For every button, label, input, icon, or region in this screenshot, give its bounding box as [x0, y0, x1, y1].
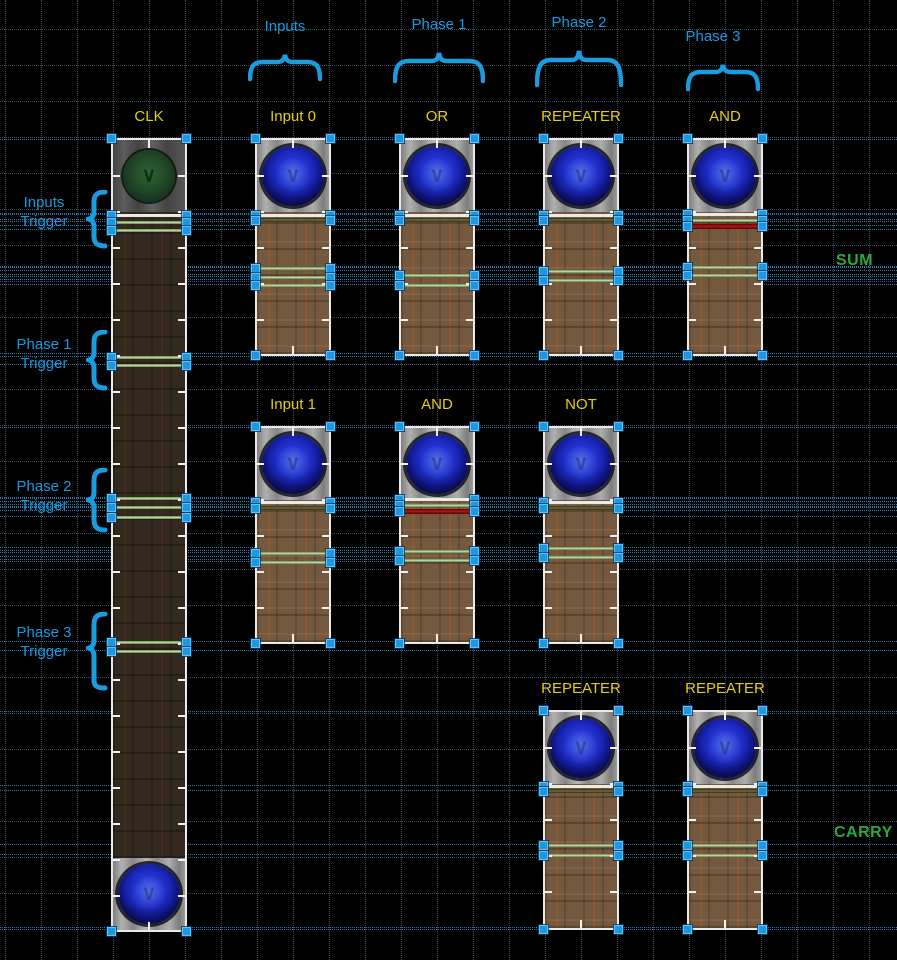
button-arrow-icon: ∨ [430, 163, 445, 188]
frame-tick [113, 679, 120, 681]
trigger-line-green [689, 274, 761, 277]
trigger-line-green [113, 221, 185, 224]
frame-tick [322, 319, 329, 321]
repeater-carry2-column-button-blue: ∨ [694, 718, 756, 778]
trigger-line-handle[interactable] [395, 216, 404, 225]
trigger-line-handle[interactable] [395, 547, 404, 556]
trigger-line-green [113, 641, 185, 644]
trigger-line-green [545, 547, 617, 550]
and-phase3-column-corner-handle-se[interactable] [758, 351, 767, 360]
not-column-corner-handle-ne[interactable] [614, 422, 623, 431]
trigger-line-green [113, 650, 185, 653]
trigger-line-green [257, 561, 329, 564]
frame-tick [466, 463, 473, 465]
frame-tick [322, 463, 329, 465]
frame-tick [724, 920, 726, 928]
trigger-line-green [689, 844, 761, 847]
trigger-line-handle[interactable] [614, 216, 623, 225]
trigger-line-handle[interactable] [326, 549, 335, 558]
trigger-line-handle[interactable] [614, 841, 623, 850]
frame-tick [178, 175, 185, 177]
trigger-line-handle[interactable] [758, 851, 767, 860]
clk-column-wood-body [113, 212, 185, 858]
and-phase1-column-label: AND [354, 396, 520, 413]
frame-tick [610, 535, 617, 537]
frame-tick [610, 607, 617, 609]
group-label-phase3: Phase 3 [668, 28, 758, 45]
not-column-corner-handle-nw[interactable] [539, 422, 548, 431]
not-column-button-blue: ∨ [550, 434, 612, 494]
and-phase1-column-corner-handle-ne[interactable] [470, 422, 479, 431]
frame-tick [545, 747, 552, 749]
trigger-line-handle[interactable] [539, 276, 548, 285]
frame-tick [178, 535, 185, 537]
frame-tick [322, 535, 329, 537]
frame-tick [178, 319, 185, 321]
input0-column-corner-handle-ne[interactable] [326, 134, 335, 143]
trigger-line-handle[interactable] [614, 544, 623, 553]
trigger-line-green [113, 516, 185, 519]
frame-tick [401, 535, 408, 537]
trigger-line-olive [257, 506, 329, 510]
phase1-trigger-brace [86, 330, 108, 392]
and-phase3-column-label: AND [642, 108, 808, 125]
button-arrow-icon: ∨ [574, 735, 589, 760]
repeater-carry2-column-corner-handle-se[interactable] [758, 925, 767, 934]
trigger-line-olive [257, 218, 329, 222]
frame-tick [292, 140, 294, 148]
trigger-line-handle[interactable] [251, 216, 260, 225]
frame-tick [148, 140, 150, 148]
and-phase1-column-corner-handle-se[interactable] [470, 639, 479, 648]
frame-tick [178, 427, 185, 429]
trigger-line-handle[interactable] [614, 787, 623, 796]
phase1-trigger-label-line1: Phase 1 [0, 335, 88, 354]
repeater-phase2-column-corner-handle-ne[interactable] [614, 134, 623, 143]
frame-tick [178, 751, 185, 753]
and-phase1-column-button-blue: ∨ [406, 434, 468, 494]
trigger-line-handle[interactable] [395, 271, 404, 280]
frame-tick [610, 819, 617, 821]
frame-tick [436, 634, 438, 642]
trigger-line-handle[interactable] [251, 504, 260, 513]
trigger-line-green [113, 356, 185, 359]
trigger-line-handle[interactable] [539, 787, 548, 796]
repeater-carry2-column-corner-handle-sw[interactable] [683, 925, 692, 934]
clk-column-corner-handle-nw[interactable] [107, 134, 116, 143]
clk-column-corner-handle-sw[interactable] [107, 927, 116, 936]
trigger-line-handle[interactable] [539, 553, 548, 562]
frame-tick [689, 175, 696, 177]
frame-tick [178, 391, 185, 393]
frame-tick [257, 175, 264, 177]
repeater-carry1-column-corner-handle-ne[interactable] [614, 706, 623, 715]
and-phase1-column-corner-handle-nw[interactable] [395, 422, 404, 431]
grid-line-vertical [869, 0, 870, 960]
frame-tick [436, 140, 438, 148]
not-column[interactable]: NOT∨ [543, 426, 619, 644]
frame-tick [113, 859, 120, 861]
input1-column-corner-handle-nw[interactable] [251, 422, 260, 431]
repeater-carry2-column-corner-handle-nw[interactable] [683, 706, 692, 715]
frame-tick [178, 859, 185, 861]
trigger-line-handle[interactable] [326, 216, 335, 225]
trigger-line-handle[interactable] [182, 638, 191, 647]
trigger-line-handle[interactable] [539, 544, 548, 553]
input1-column-label: Input 1 [210, 396, 376, 413]
and-phase3-column-button-tile: ∨ [689, 140, 761, 212]
clk-column-button-tile: ∨ [113, 140, 185, 212]
trigger-line-handle[interactable] [107, 513, 116, 522]
frame-tick [466, 247, 473, 249]
grid-line-vertical [221, 0, 222, 960]
frame-tick [322, 607, 329, 609]
trigger-line-handle[interactable] [107, 226, 116, 235]
frame-tick [580, 920, 582, 928]
phase2-trigger-brace [86, 468, 108, 534]
trigger-line-handle[interactable] [683, 271, 692, 280]
frame-tick [754, 247, 761, 249]
repeater-carry1-column-button-blue: ∨ [550, 718, 612, 778]
frame-tick [178, 715, 185, 717]
or-column-corner-handle-sw[interactable] [395, 351, 404, 360]
input1-column-corner-handle-ne[interactable] [326, 422, 335, 431]
trigger-line-green [545, 854, 617, 857]
or-column-wood-body [401, 212, 473, 354]
input0-column-label: Input 0 [210, 108, 376, 125]
phase1-trigger-label: Phase 1 Trigger [0, 335, 88, 373]
trigger-line-handle[interactable] [326, 281, 335, 290]
trigger-line-handle[interactable] [251, 549, 260, 558]
trigger-line-handle[interactable] [107, 638, 116, 647]
repeater-phase2-column-corner-handle-sw[interactable] [539, 351, 548, 360]
repeater-carry2-column[interactable]: REPEATER∨ [687, 710, 763, 930]
inputs-trigger-label-line1: Inputs [0, 193, 88, 212]
frame-tick [113, 463, 120, 465]
and-phase1-column-wood-body [401, 500, 473, 642]
repeater-phase2-column[interactable]: REPEATER∨ [543, 138, 619, 356]
frame-tick [610, 319, 617, 321]
input0-column-corner-handle-se[interactable] [326, 351, 335, 360]
frame-tick [689, 283, 696, 285]
trigger-line-green [401, 504, 473, 507]
repeater-phase2-column-label: REPEATER [498, 108, 664, 125]
and-phase1-column[interactable]: AND∨ [399, 426, 475, 644]
frame-tick [113, 571, 120, 573]
trigger-line-handle[interactable] [395, 507, 404, 516]
frame-tick [754, 175, 761, 177]
repeater-carry1-column-corner-handle-nw[interactable] [539, 706, 548, 715]
repeater-phase2-column-corner-handle-se[interactable] [614, 351, 623, 360]
frame-tick [257, 535, 264, 537]
trigger-line-handle[interactable] [614, 267, 623, 276]
clk-column-button-green: ∨ [123, 150, 175, 202]
frame-tick [580, 428, 582, 436]
trigger-line-handle[interactable] [614, 504, 623, 513]
trigger-line-handle[interactable] [251, 558, 260, 567]
trigger-line-handle[interactable] [470, 507, 479, 516]
trigger-line-handle[interactable] [683, 787, 692, 796]
input1-column[interactable]: Input 1∨ [255, 426, 331, 644]
or-column-button-blue: ∨ [406, 146, 468, 206]
repeater-phase2-column-wood-body [545, 212, 617, 354]
clk-column[interactable]: CLK∨∨ [111, 138, 187, 932]
repeater-carry2-column-corner-handle-ne[interactable] [758, 706, 767, 715]
frame-tick [610, 571, 617, 573]
trigger-line-handle[interactable] [470, 556, 479, 565]
clk-column-bottom-button-tile: ∨ [113, 858, 185, 930]
repeater-phase2-column-button-blue: ∨ [550, 146, 612, 206]
trigger-line-white [545, 785, 617, 788]
trigger-line-white [401, 214, 473, 217]
repeater-carry1-column-button-tile: ∨ [545, 712, 617, 784]
trigger-line-handle[interactable] [470, 281, 479, 290]
input1-column-button-tile: ∨ [257, 428, 329, 500]
phase3-trigger-brace [86, 612, 108, 692]
trigger-line-handle[interactable] [614, 851, 623, 860]
not-column-wood-body [545, 500, 617, 642]
trigger-line-handle[interactable] [683, 222, 692, 231]
frame-tick [610, 247, 617, 249]
frame-tick [113, 427, 120, 429]
inputs-trigger-label: Inputs Trigger [0, 193, 88, 231]
trigger-line-handle[interactable] [251, 281, 260, 290]
input0-column-wood-body [257, 212, 329, 354]
frame-tick [257, 247, 264, 249]
trigger-line-handle[interactable] [470, 271, 479, 280]
frame-tick [178, 895, 185, 897]
frame-tick [580, 634, 582, 642]
trigger-line-green [257, 284, 329, 287]
frame-tick [178, 607, 185, 609]
trigger-line-handle[interactable] [470, 216, 479, 225]
trigger-line-handle[interactable] [182, 513, 191, 522]
trigger-line-handle[interactable] [182, 647, 191, 656]
frame-tick [580, 712, 582, 720]
trigger-line-white [257, 214, 329, 217]
frame-tick [545, 571, 552, 573]
trigger-line-green [257, 276, 329, 279]
frame-tick [401, 175, 408, 177]
repeater-carry1-column-corner-handle-sw[interactable] [539, 925, 548, 934]
frame-tick [689, 247, 696, 249]
frame-tick [178, 823, 185, 825]
trigger-line-handle[interactable] [326, 264, 335, 273]
trigger-line-green [401, 284, 473, 287]
trigger-line-handle[interactable] [539, 841, 548, 850]
or-column-corner-handle-se[interactable] [470, 351, 479, 360]
trigger-line-white [113, 214, 185, 217]
frame-tick [545, 175, 552, 177]
input0-column-corner-handle-nw[interactable] [251, 134, 260, 143]
trigger-line-handle[interactable] [107, 494, 116, 503]
and-phase3-column[interactable]: AND∨ [687, 138, 763, 356]
or-column-corner-handle-ne[interactable] [470, 134, 479, 143]
inputs-trigger-label-line2: Trigger [0, 212, 88, 231]
input1-column-corner-handle-se[interactable] [326, 639, 335, 648]
inputs-brace [248, 52, 322, 84]
frame-tick [545, 535, 552, 537]
clk-column-corner-handle-se[interactable] [182, 927, 191, 936]
trigger-line-handle[interactable] [683, 841, 692, 850]
trigger-line-handle[interactable] [182, 226, 191, 235]
input0-column[interactable]: Input 0∨ [255, 138, 331, 356]
and-phase3-column-wood-body [689, 212, 761, 354]
frame-tick [754, 819, 761, 821]
trigger-line-green [689, 854, 761, 857]
trigger-line-white [545, 501, 617, 504]
repeater-carry1-column-corner-handle-se[interactable] [614, 925, 623, 934]
frame-tick [178, 283, 185, 285]
trigger-line-handle[interactable] [539, 504, 548, 513]
frame-tick [401, 463, 408, 465]
trigger-line-handle[interactable] [683, 851, 692, 860]
not-column-corner-handle-sw[interactable] [539, 639, 548, 648]
trigger-line-green [689, 266, 761, 269]
frame-tick [178, 463, 185, 465]
trigger-line-handle[interactable] [326, 504, 335, 513]
frame-tick [545, 319, 552, 321]
and-phase3-column-corner-handle-sw[interactable] [683, 351, 692, 360]
frame-tick [113, 751, 120, 753]
not-column-corner-handle-se[interactable] [614, 639, 623, 648]
trigger-line-green [113, 506, 185, 509]
trigger-line-olive [545, 506, 617, 510]
frame-tick [401, 319, 408, 321]
frame-tick [580, 140, 582, 148]
phase3-trigger-label-line1: Phase 3 [0, 623, 88, 642]
trigger-line-handle[interactable] [107, 647, 116, 656]
clk-column-bottom-button-blue: ∨ [118, 864, 180, 924]
repeater-carry1-column[interactable]: REPEATER∨ [543, 710, 619, 930]
frame-tick [466, 607, 473, 609]
phase1-brace [393, 50, 485, 86]
trigger-line-handle[interactable] [614, 276, 623, 285]
and-phase3-column-corner-handle-nw[interactable] [683, 134, 692, 143]
trigger-line-handle[interactable] [539, 267, 548, 276]
trigger-line-handle[interactable] [470, 547, 479, 556]
trigger-line-handle[interactable] [182, 494, 191, 503]
frame-tick [724, 346, 726, 354]
phase2-brace [535, 48, 623, 90]
trigger-line-handle[interactable] [539, 851, 548, 860]
button-arrow-icon: ∨ [718, 735, 733, 760]
trigger-line-handle[interactable] [614, 553, 623, 562]
frame-tick [113, 607, 120, 609]
frame-tick [724, 712, 726, 720]
trigger-line-handle[interactable] [758, 271, 767, 280]
frame-tick [754, 891, 761, 893]
phase1-trigger-label-line2: Trigger [0, 354, 88, 373]
button-arrow-icon: ∨ [430, 451, 445, 476]
carry-label: CARRY [834, 824, 893, 842]
trigger-line-handle[interactable] [539, 216, 548, 225]
frame-tick [466, 571, 473, 573]
trigger-line-green [545, 556, 617, 559]
grid-line-vertical [509, 0, 510, 960]
trigger-line-handle[interactable] [182, 361, 191, 370]
frame-tick [113, 823, 120, 825]
button-arrow-icon: ∨ [574, 451, 589, 476]
button-arrow-icon: ∨ [142, 163, 157, 188]
or-column[interactable]: OR∨ [399, 138, 475, 356]
phase2-trigger-label-line1: Phase 2 [0, 477, 88, 496]
editor-canvas: Inputs Phase 1 Phase 2 Phase 3 Inputs Tr… [0, 0, 897, 960]
frame-tick [466, 175, 473, 177]
trigger-line-handle[interactable] [758, 787, 767, 796]
and-phase1-column-corner-handle-sw[interactable] [395, 639, 404, 648]
input0-column-button-tile: ∨ [257, 140, 329, 212]
trigger-line-white [689, 213, 761, 216]
trigger-line-handle[interactable] [758, 222, 767, 231]
trigger-line-green [401, 559, 473, 562]
frame-tick [113, 283, 120, 285]
repeater-phase2-column-corner-handle-nw[interactable] [539, 134, 548, 143]
grid-line-vertical [653, 0, 654, 960]
group-label-phase1: Phase 1 [394, 16, 484, 33]
and-phase3-column-corner-handle-ne[interactable] [758, 134, 767, 143]
input1-column-wood-body [257, 500, 329, 642]
input0-column-button-blue: ∨ [262, 146, 324, 206]
trigger-line-handle[interactable] [395, 556, 404, 565]
trigger-line-olive [689, 789, 761, 793]
trigger-line-handle[interactable] [326, 558, 335, 567]
input1-column-corner-handle-sw[interactable] [251, 639, 260, 648]
input1-column-button-blue: ∨ [262, 434, 324, 494]
trigger-line-green [113, 497, 185, 500]
frame-tick [545, 463, 552, 465]
frame-tick [689, 319, 696, 321]
frame-tick [610, 175, 617, 177]
trigger-line-handle[interactable] [182, 503, 191, 512]
trigger-line-handle[interactable] [107, 503, 116, 512]
frame-tick [257, 463, 264, 465]
trigger-line-handle[interactable] [251, 264, 260, 273]
frame-tick [113, 787, 120, 789]
trigger-line-green [257, 552, 329, 555]
or-column-label: OR [354, 108, 520, 125]
trigger-line-handle[interactable] [395, 281, 404, 290]
clk-column-corner-handle-ne[interactable] [182, 134, 191, 143]
trigger-line-green [545, 279, 617, 282]
frame-tick [113, 715, 120, 717]
frame-tick [401, 607, 408, 609]
frame-tick [689, 891, 696, 893]
grid-line-horizontal [0, 101, 897, 102]
inputs-trigger-brace [86, 190, 108, 250]
frame-tick [466, 319, 473, 321]
trigger-line-handle[interactable] [107, 361, 116, 370]
frame-tick [322, 571, 329, 573]
trigger-line-olive [545, 789, 617, 793]
frame-tick [178, 679, 185, 681]
frame-tick [257, 319, 264, 321]
frame-tick [113, 319, 120, 321]
input0-column-corner-handle-sw[interactable] [251, 351, 260, 360]
or-column-corner-handle-nw[interactable] [395, 134, 404, 143]
frame-tick [754, 747, 761, 749]
frame-tick [610, 891, 617, 893]
frame-tick [292, 428, 294, 436]
button-arrow-icon: ∨ [574, 163, 589, 188]
frame-tick [545, 607, 552, 609]
not-column-button-tile: ∨ [545, 428, 617, 500]
trigger-line-handle[interactable] [758, 841, 767, 850]
frame-tick [113, 535, 120, 537]
frame-tick [754, 319, 761, 321]
sum-label: SUM [836, 252, 873, 270]
frame-tick [178, 787, 185, 789]
